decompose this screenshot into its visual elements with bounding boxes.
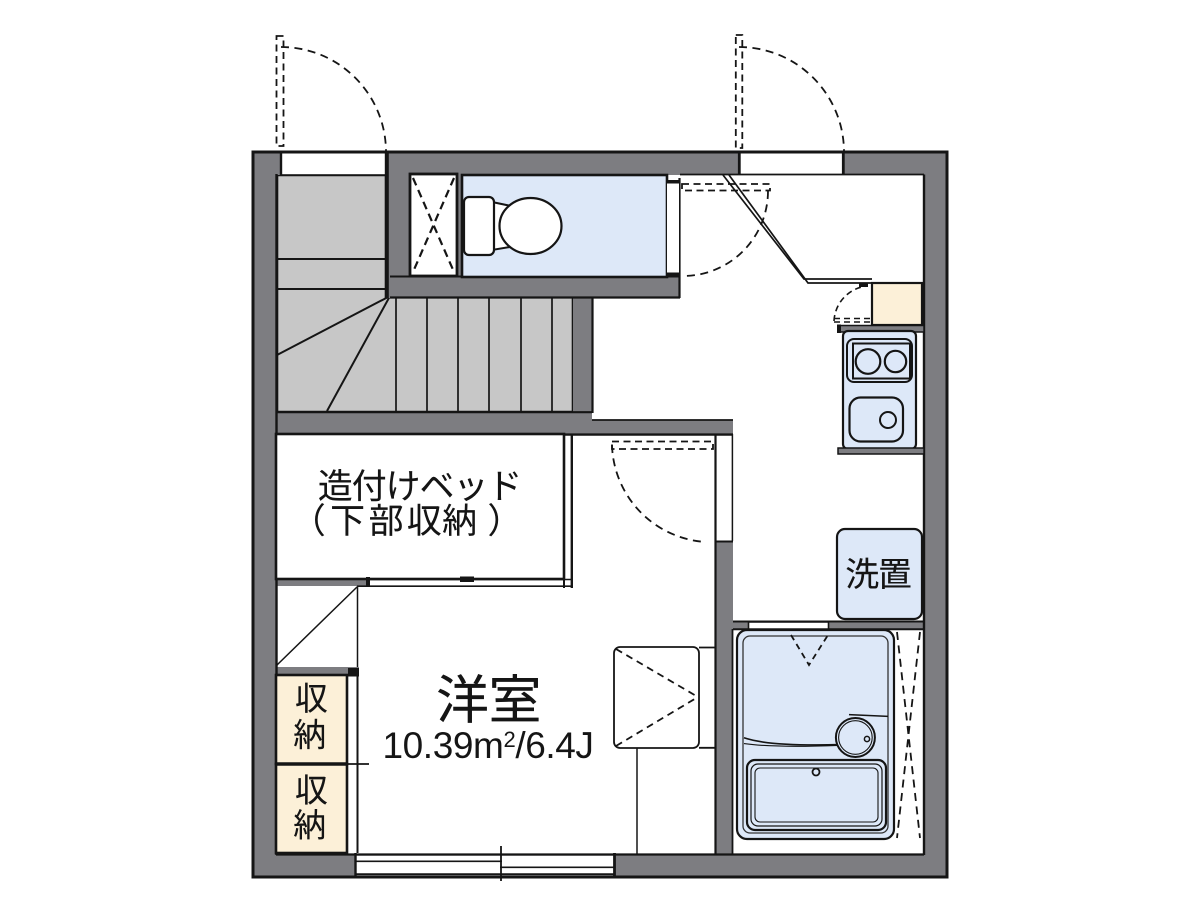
svg-text:10.39m2/6.4J: 10.39m2/6.4J	[382, 725, 593, 766]
